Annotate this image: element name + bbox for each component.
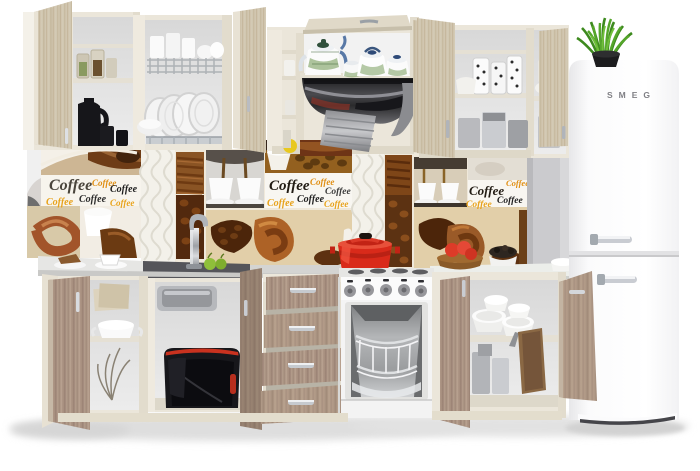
svg-text:SMEG: SMEG	[607, 90, 656, 100]
svg-text:Coffee: Coffee	[79, 194, 107, 205]
svg-text:Coffee: Coffee	[325, 187, 351, 197]
svg-text:Coffee: Coffee	[297, 194, 325, 205]
svg-text:Coffee: Coffee	[46, 197, 74, 208]
svg-text:Coffee: Coffee	[466, 200, 492, 210]
svg-text:Coffee: Coffee	[324, 199, 348, 209]
svg-text:Coffee: Coffee	[269, 178, 310, 194]
svg-text:Coffee: Coffee	[310, 177, 334, 187]
svg-text:Coffee: Coffee	[497, 196, 523, 206]
svg-text:Coffee: Coffee	[110, 198, 134, 208]
svg-text:Coffee: Coffee	[49, 177, 92, 194]
svg-text:Coffee: Coffee	[267, 198, 295, 209]
svg-text:Coffee: Coffee	[506, 178, 529, 188]
svg-text:Coffee: Coffee	[110, 184, 138, 195]
